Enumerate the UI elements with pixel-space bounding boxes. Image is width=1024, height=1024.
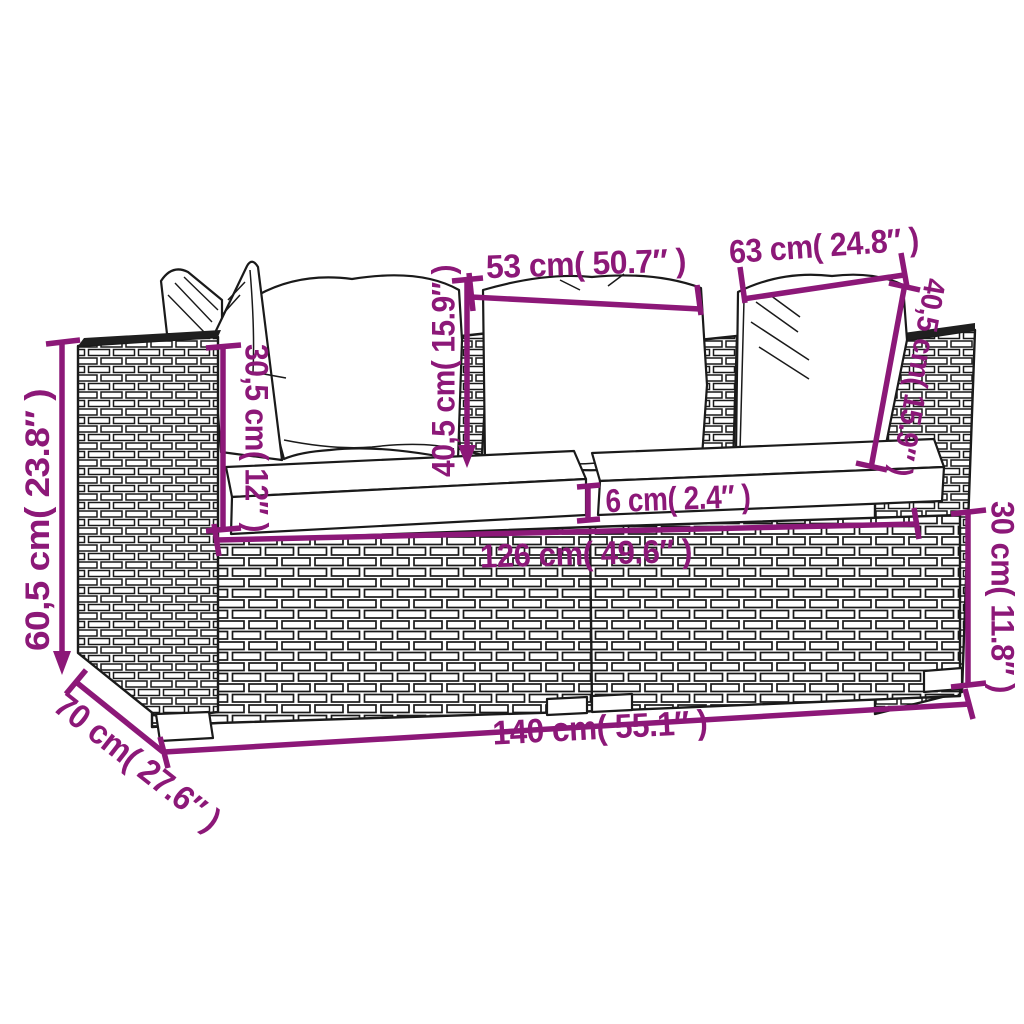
corner-pillow	[161, 269, 222, 338]
dim-label-seat-width-inner: 126 cm( 49.6″ )	[479, 532, 692, 575]
dim-label-back-cushion-height-center: 40,5 cm( 15.9″ )	[425, 265, 461, 477]
dim-label-armrest-height-above-seat: 30,5 cm( 12″ )	[239, 344, 275, 532]
dim-label-frame-height: 30 cm( 11.8″ )	[985, 501, 1021, 693]
left-armrest	[78, 330, 221, 719]
dim-label-seat-cushion-width-right: 63 cm( 24.8″ )	[728, 220, 920, 270]
sofa-line-art	[78, 262, 975, 741]
dim-label-total-height: 60,5 cm( 23.8″ )	[19, 389, 57, 651]
dim-label-seat-cushion-thickness: 6 cm( 2.4″ )	[605, 477, 751, 519]
sofa-dimension-drawing: 53 cm( 50.7″ ) 63 cm( 24.8″ ) 40,5 cm( 1…	[0, 0, 1024, 1024]
dim-label-seat-cushion-width-center: 53 cm( 50.7″ )	[485, 241, 686, 285]
product-dimension-diagram: 53 cm( 50.7″ ) 63 cm( 24.8″ ) 40,5 cm( 1…	[0, 0, 1024, 1024]
back-pillow-right	[736, 275, 907, 469]
dim-total-height: 60,5 cm( 23.8″ )	[19, 340, 80, 675]
